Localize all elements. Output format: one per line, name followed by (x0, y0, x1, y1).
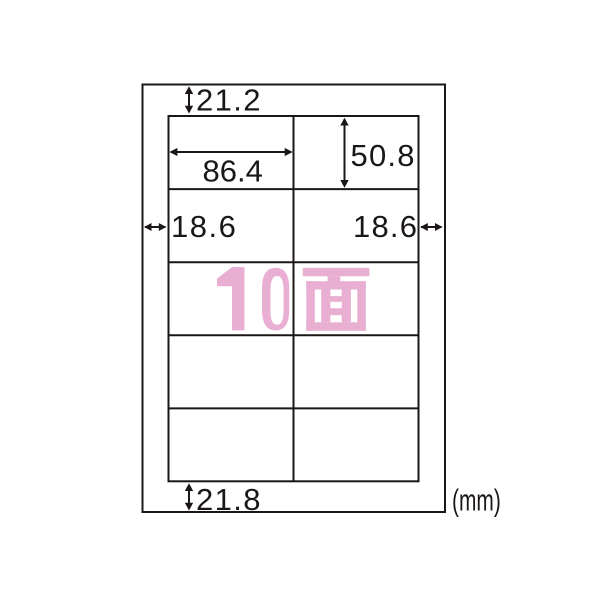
svg-text:21.8: 21.8 (196, 482, 262, 517)
svg-text:(mm): (mm) (452, 482, 501, 517)
svg-text:21.2: 21.2 (196, 83, 262, 118)
svg-text:18.6: 18.6 (353, 209, 418, 244)
svg-text:50.8: 50.8 (351, 138, 416, 173)
svg-text:86.4: 86.4 (203, 154, 263, 189)
svg-text:18.6: 18.6 (171, 209, 237, 244)
